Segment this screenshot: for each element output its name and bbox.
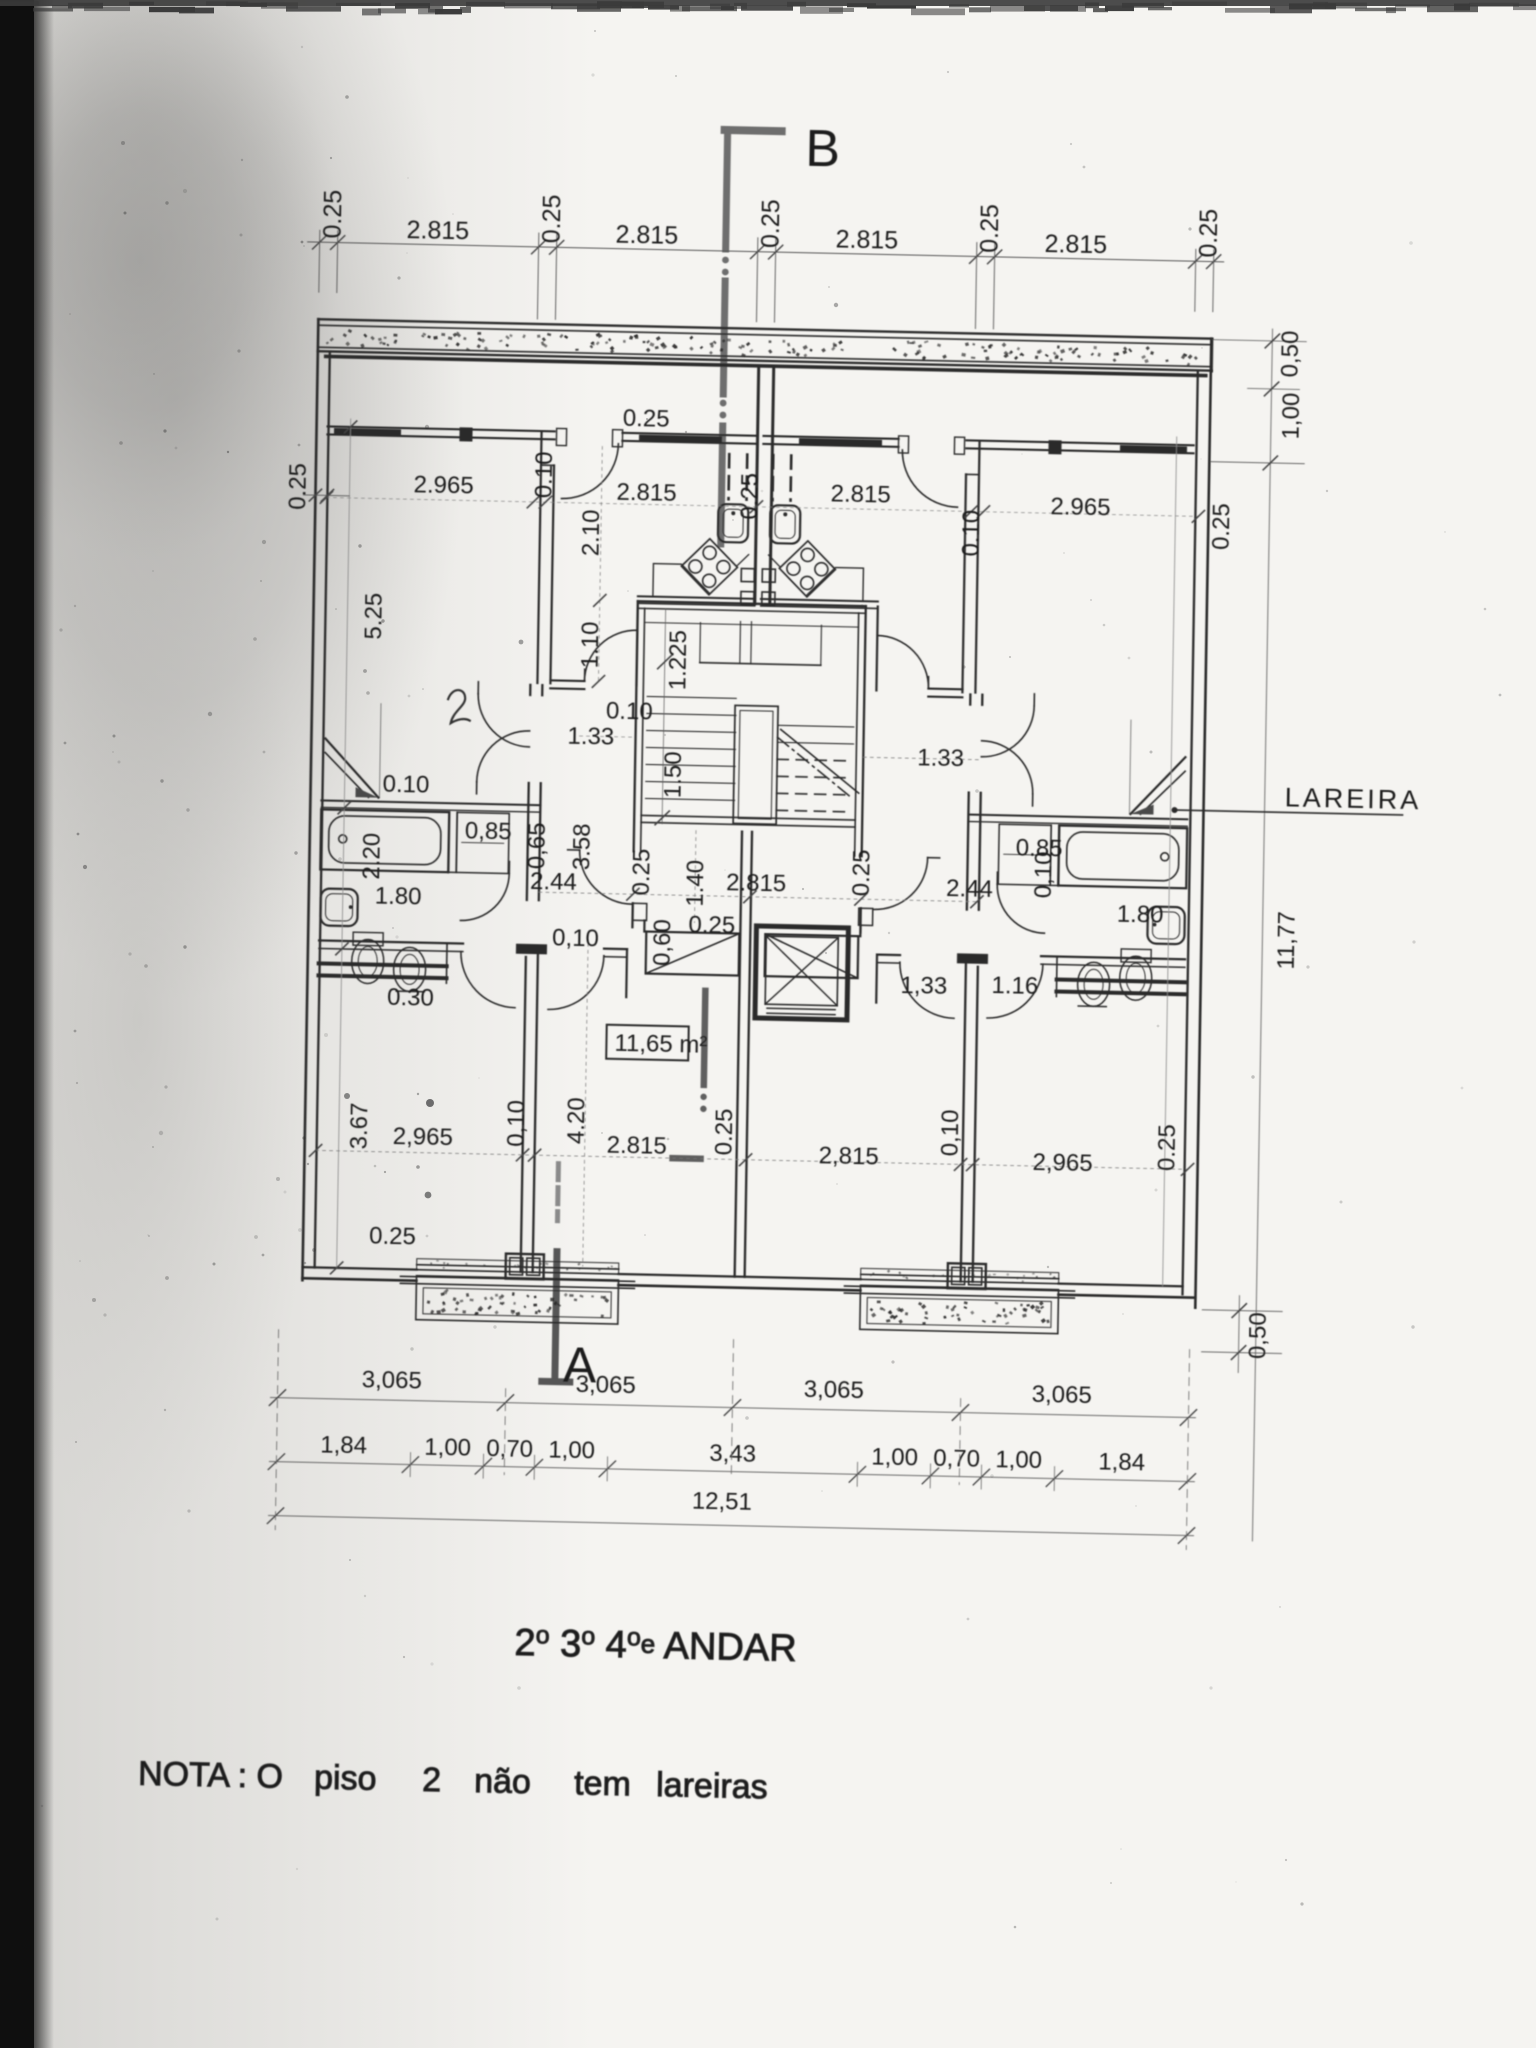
svg-text:3.67: 3.67	[346, 1102, 374, 1149]
svg-text:3,065: 3,065	[362, 1366, 422, 1394]
svg-text:0.25: 0.25	[688, 911, 735, 939]
svg-text:2.815: 2.815	[830, 480, 890, 508]
svg-text:1,00: 1,00	[871, 1444, 918, 1472]
svg-text:2.815: 2.815	[406, 216, 469, 245]
svg-text:1.33: 1.33	[917, 744, 964, 772]
svg-text:3.58: 3.58	[568, 823, 596, 870]
svg-text:0.25: 0.25	[1154, 1124, 1182, 1171]
svg-text:0.25: 0.25	[736, 473, 764, 520]
svg-text:12,51: 12,51	[692, 1488, 752, 1516]
svg-text:0.25: 0.25	[1208, 503, 1236, 550]
svg-text:1,00: 1,00	[424, 1434, 471, 1462]
svg-text:0.25: 0.25	[711, 1108, 739, 1155]
svg-text:2o 3o 4oe ANDAR: 2o 3o 4oe ANDAR	[514, 1621, 797, 1670]
svg-text:0.10: 0.10	[958, 509, 986, 556]
svg-text:0.25: 0.25	[848, 849, 876, 896]
svg-text:1.10: 1.10	[577, 621, 605, 668]
svg-text:2.815: 2.815	[606, 1132, 666, 1160]
svg-text:0,10: 0,10	[552, 924, 599, 952]
svg-text:0.10: 0.10	[382, 771, 429, 799]
svg-text:1.33: 1.33	[567, 723, 614, 751]
svg-text:3,065: 3,065	[576, 1371, 636, 1399]
svg-text:2.815: 2.815	[615, 221, 678, 250]
svg-text:0.25: 0.25	[319, 189, 348, 238]
svg-text:1.40: 1.40	[682, 860, 710, 907]
svg-text:0.25: 0.25	[623, 405, 670, 433]
svg-text:1.16: 1.16	[991, 972, 1038, 1000]
svg-text:4.20: 4.20	[563, 1097, 591, 1144]
svg-text:B: B	[805, 120, 841, 179]
svg-text:0,10: 0,10	[1030, 851, 1058, 898]
svg-text:0.25: 0.25	[628, 848, 656, 895]
svg-text:1,33: 1,33	[900, 972, 947, 1000]
svg-text:2.965: 2.965	[413, 471, 473, 499]
svg-text:1.80: 1.80	[375, 883, 422, 911]
svg-text:1,00: 1,00	[1278, 392, 1306, 439]
svg-text:5.25: 5.25	[360, 592, 388, 639]
svg-text:2.44: 2.44	[946, 875, 993, 903]
svg-text:0.30: 0.30	[387, 984, 434, 1012]
svg-text:0,70: 0,70	[933, 1445, 980, 1473]
svg-text:1,00: 1,00	[548, 1437, 595, 1465]
svg-text:2,965: 2,965	[393, 1123, 453, 1151]
svg-text:11,65 m²: 11,65 m²	[614, 1030, 707, 1059]
svg-text:1.50: 1.50	[660, 751, 688, 798]
svg-text:1,00: 1,00	[995, 1446, 1042, 1474]
svg-text:3,065: 3,065	[1032, 1381, 1092, 1409]
svg-text:3,43: 3,43	[709, 1440, 756, 1468]
svg-text:2.815: 2.815	[835, 225, 898, 254]
svg-text:2.815: 2.815	[1044, 230, 1107, 259]
svg-text:3,065: 3,065	[804, 1376, 864, 1404]
svg-text:2.44: 2.44	[530, 868, 577, 896]
svg-text:0,50: 0,50	[1244, 1312, 1272, 1359]
svg-text:0.10: 0.10	[606, 698, 653, 726]
svg-text:0.25: 0.25	[757, 199, 786, 248]
svg-text:1.225: 1.225	[664, 630, 692, 691]
svg-text:0,85: 0,85	[465, 818, 512, 846]
svg-text:0.25: 0.25	[538, 194, 567, 243]
svg-text:0.10: 0.10	[530, 451, 558, 498]
svg-text:0.25: 0.25	[1195, 209, 1224, 258]
svg-text:0,70: 0,70	[486, 1435, 533, 1463]
svg-text:11,77: 11,77	[1273, 911, 1301, 970]
svg-text:2,815: 2,815	[818, 1142, 878, 1170]
svg-text:1,84: 1,84	[1098, 1449, 1145, 1477]
svg-text:2.10: 2.10	[578, 509, 606, 556]
svg-text:1.80: 1.80	[1117, 901, 1164, 929]
svg-text:0,10: 0,10	[937, 1109, 965, 1156]
svg-text:1,84: 1,84	[320, 1432, 367, 1460]
svg-text:2.815: 2.815	[726, 869, 786, 897]
svg-text:0.25: 0.25	[369, 1223, 416, 1251]
svg-text:0,10: 0,10	[503, 1100, 531, 1147]
svg-text:2.815: 2.815	[616, 479, 676, 507]
svg-text:0.25: 0.25	[284, 463, 312, 510]
svg-text:LAREIRA: LAREIRA	[1285, 782, 1422, 815]
svg-text:2.965: 2.965	[1050, 493, 1110, 521]
svg-text:0,65: 0,65	[523, 822, 551, 869]
svg-text:0,60: 0,60	[649, 919, 677, 966]
svg-text:0,50: 0,50	[1277, 330, 1305, 377]
svg-text:2.20: 2.20	[358, 833, 386, 880]
svg-text:2,965: 2,965	[1032, 1149, 1092, 1177]
svg-text:0.25: 0.25	[976, 204, 1005, 253]
